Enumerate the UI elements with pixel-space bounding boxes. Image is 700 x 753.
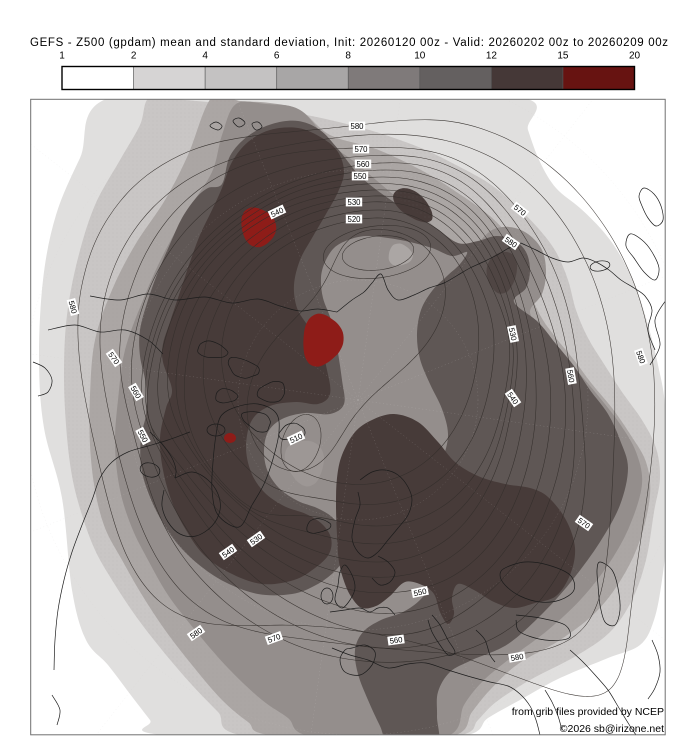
svg-text:20: 20 — [629, 51, 641, 62]
svg-text:from grib files provided by NC: from grib files provided by NCEP — [512, 706, 664, 718]
svg-text:580: 580 — [350, 122, 364, 131]
svg-text:1: 1 — [59, 51, 65, 62]
svg-text:©2026 sb@irizone.net: ©2026 sb@irizone.net — [560, 723, 664, 735]
svg-text:8: 8 — [345, 51, 351, 62]
svg-text:10: 10 — [414, 51, 426, 62]
svg-text:GEFS - Z500 (gpdam) mean and s: GEFS - Z500 (gpdam) mean and standard de… — [30, 37, 669, 49]
svg-text:570: 570 — [354, 145, 368, 154]
svg-text:530: 530 — [347, 198, 361, 207]
svg-text:550: 550 — [353, 172, 367, 181]
svg-text:15: 15 — [557, 51, 569, 62]
svg-text:12: 12 — [486, 51, 498, 62]
svg-text:520: 520 — [347, 215, 361, 224]
svg-text:4: 4 — [202, 51, 208, 62]
svg-text:6: 6 — [274, 51, 280, 62]
svg-text:560: 560 — [356, 160, 370, 169]
svg-text:560: 560 — [389, 635, 404, 646]
svg-text:2: 2 — [131, 51, 137, 62]
